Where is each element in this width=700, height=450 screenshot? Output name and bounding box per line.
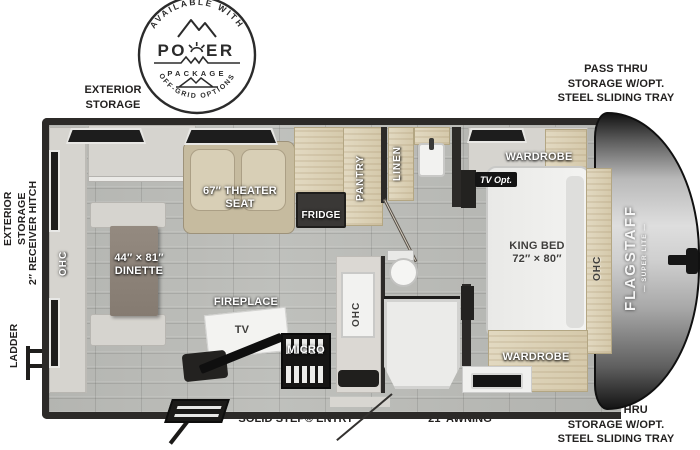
toilet bbox=[389, 258, 418, 287]
label-line: EXTERIOR bbox=[57, 83, 169, 98]
rear-window bbox=[49, 298, 60, 368]
label-tv: TV bbox=[228, 324, 256, 337]
top-window bbox=[66, 128, 146, 144]
step-tread bbox=[177, 406, 222, 409]
label-line: EXTERIOR bbox=[2, 150, 16, 288]
label-ohc-front: OHC bbox=[592, 240, 604, 296]
label-dinette: 44″ × 81″ DINETTE bbox=[96, 252, 182, 277]
label-line: 44″ × 81″ bbox=[96, 252, 182, 265]
badge-arc-top-text: AVAILABLE WITH bbox=[148, 0, 247, 30]
cabinet-over-fridge bbox=[294, 127, 346, 193]
label-line: PASS THRU bbox=[532, 62, 700, 77]
microwave-grill bbox=[286, 366, 326, 383]
label-theater-seat: 67″ THEATER SEAT bbox=[196, 185, 284, 210]
label-passthru-top: PASS THRU STORAGE W/OPT. STEEL SLIDING T… bbox=[532, 62, 700, 106]
label-wardrobe-front: WARDROBE bbox=[498, 151, 580, 164]
label-fireplace: FIREPLACE bbox=[206, 296, 286, 309]
label-line: DINETTE bbox=[96, 265, 182, 278]
label-king-bed: KING BED 72″ × 80″ bbox=[494, 240, 580, 265]
hitch-jack bbox=[686, 248, 698, 274]
label-line: SEAT bbox=[196, 198, 284, 211]
top-window bbox=[184, 128, 278, 145]
label-exterior-storage-top: EXTERIOR STORAGE bbox=[57, 83, 169, 112]
label-wardrobe-rear: WARDROBE bbox=[495, 351, 577, 364]
badge-title-left: PO bbox=[157, 41, 187, 60]
tv-opt-badge: TV Opt. bbox=[475, 172, 517, 187]
dinette-bench bbox=[90, 202, 166, 228]
label-micro: MICRO bbox=[276, 344, 336, 357]
bath-wall bbox=[452, 127, 461, 207]
label-ohc-rear: OHC bbox=[58, 232, 70, 294]
label-line: STEEL SLIDING TRAY bbox=[532, 432, 700, 447]
vanity-faucet bbox=[429, 138, 434, 150]
kitchen-sink bbox=[338, 370, 379, 387]
rear-window bbox=[49, 150, 60, 232]
floorplan-canvas: AVAILABLE WITH PO ER PACKAGE OFF-GRID OP… bbox=[0, 0, 700, 450]
label-pantry: PANTRY bbox=[355, 132, 367, 224]
bedroom-tv-wall bbox=[461, 286, 474, 320]
label-line: STEEL SLIDING TRAY bbox=[532, 91, 700, 106]
microwave bbox=[281, 333, 331, 389]
shower bbox=[384, 299, 460, 389]
label-line: KING BED bbox=[494, 240, 580, 253]
step-tread bbox=[174, 414, 219, 417]
badge-title-right: ER bbox=[206, 41, 235, 60]
top-window bbox=[467, 128, 527, 143]
slide-edge bbox=[88, 176, 194, 182]
tv-opt-wall bbox=[461, 170, 476, 208]
badge-mountain-reflection-icon bbox=[176, 78, 218, 87]
bath-wall bbox=[381, 127, 387, 203]
label-ohc-kitchen: OHC bbox=[351, 290, 363, 338]
label-exterior-storage-left: EXTERIOR STORAGE bbox=[2, 150, 30, 288]
bedroom-bottom-window bbox=[471, 373, 523, 389]
entry-step bbox=[164, 399, 230, 423]
sun-icon bbox=[189, 42, 204, 52]
label-line: STORAGE W/OPT. bbox=[532, 418, 700, 433]
brand-super-lite: — SUPER LITE — bbox=[641, 198, 648, 318]
label-line: STORAGE W/OPT. bbox=[532, 77, 700, 92]
dinette-bench bbox=[90, 314, 166, 346]
brand-flagstaff: FLAGSTAFF bbox=[622, 172, 639, 344]
label-line: 72″ × 80″ bbox=[494, 253, 580, 266]
label-fridge: FRIDGE bbox=[296, 210, 346, 222]
label-receiver-hitch: 2″ RECEIVER HITCH bbox=[27, 152, 41, 314]
label-linen: LINEN bbox=[392, 132, 404, 196]
label-line: STORAGE bbox=[57, 98, 169, 113]
label-ladder: LADDER bbox=[8, 322, 22, 370]
badge-subtitle: PACKAGE bbox=[167, 69, 226, 78]
mountain-icon bbox=[178, 20, 216, 37]
label-line: 67″ THEATER bbox=[196, 185, 284, 198]
